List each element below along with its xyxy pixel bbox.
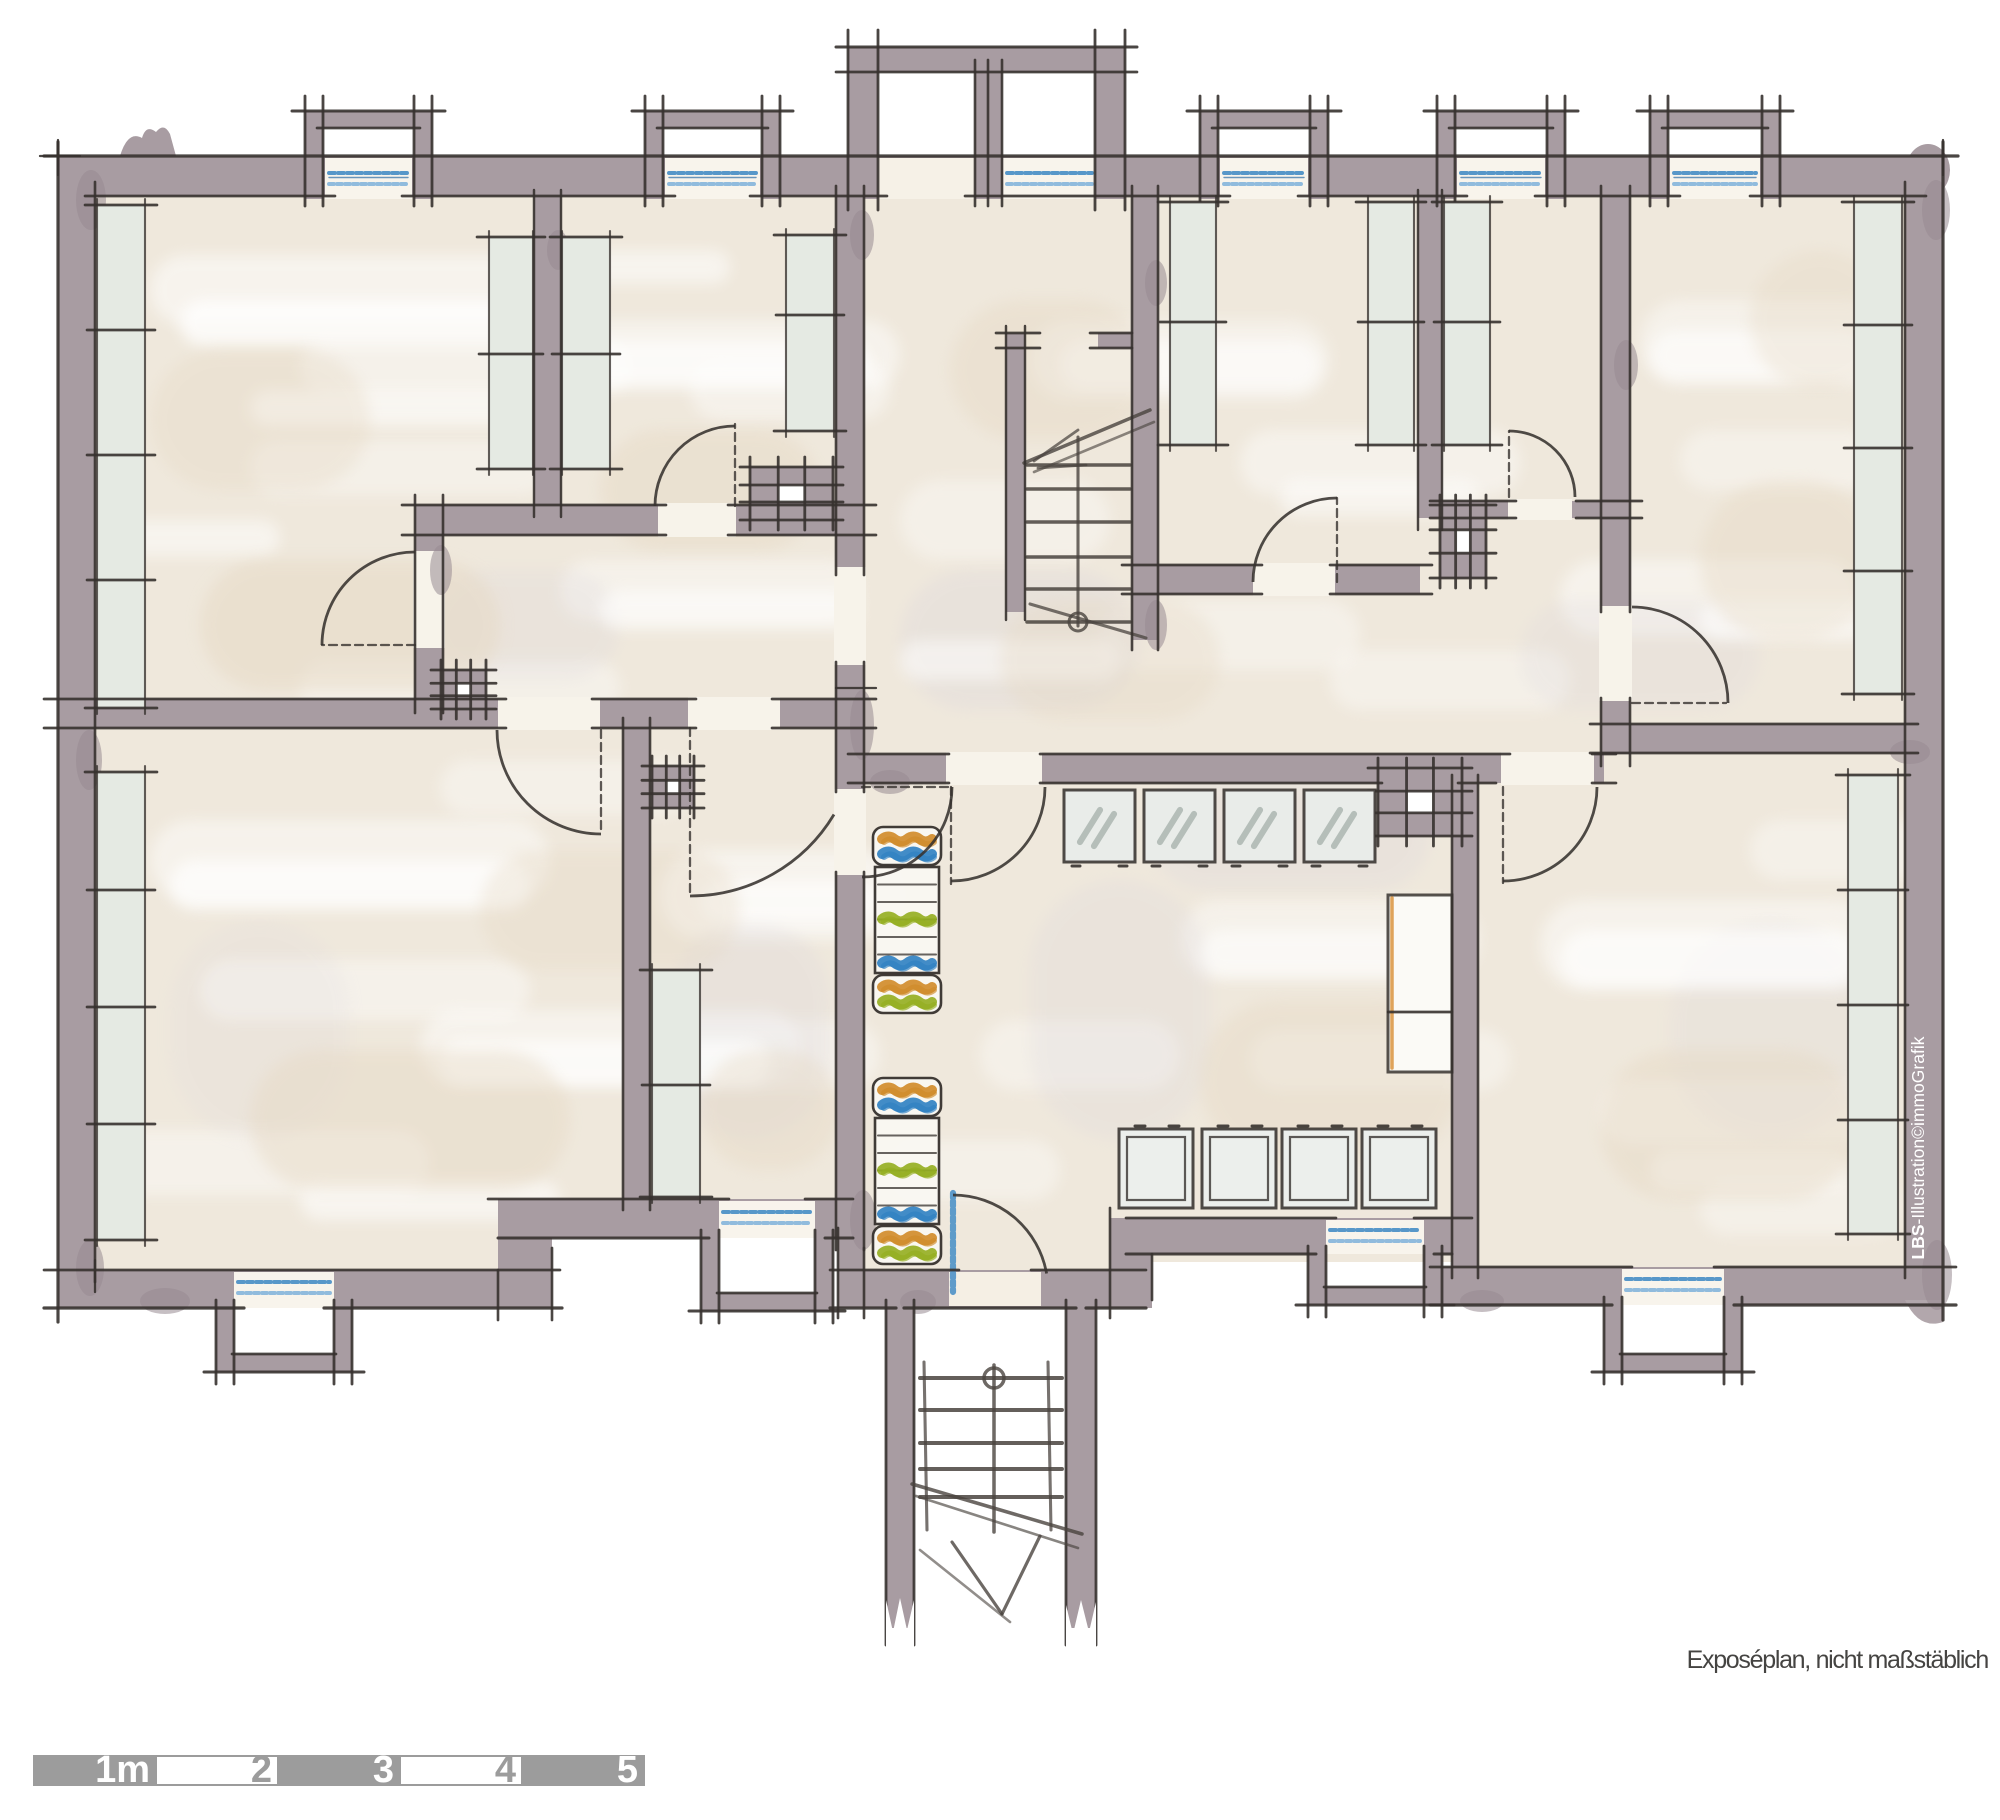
svg-text:Exposéplan, nicht maßstäblich: Exposéplan, nicht maßstäblich [1687, 1646, 1989, 1674]
svg-text:4: 4 [495, 1749, 516, 1791]
svg-text:2: 2 [251, 1749, 272, 1791]
svg-text:1m: 1m [95, 1749, 150, 1791]
svg-text:5: 5 [617, 1749, 638, 1791]
svg-text:3: 3 [373, 1749, 394, 1791]
svg-text:LBS-Illustration©immoGrafik: LBS-Illustration©immoGrafik [1908, 1036, 1928, 1259]
